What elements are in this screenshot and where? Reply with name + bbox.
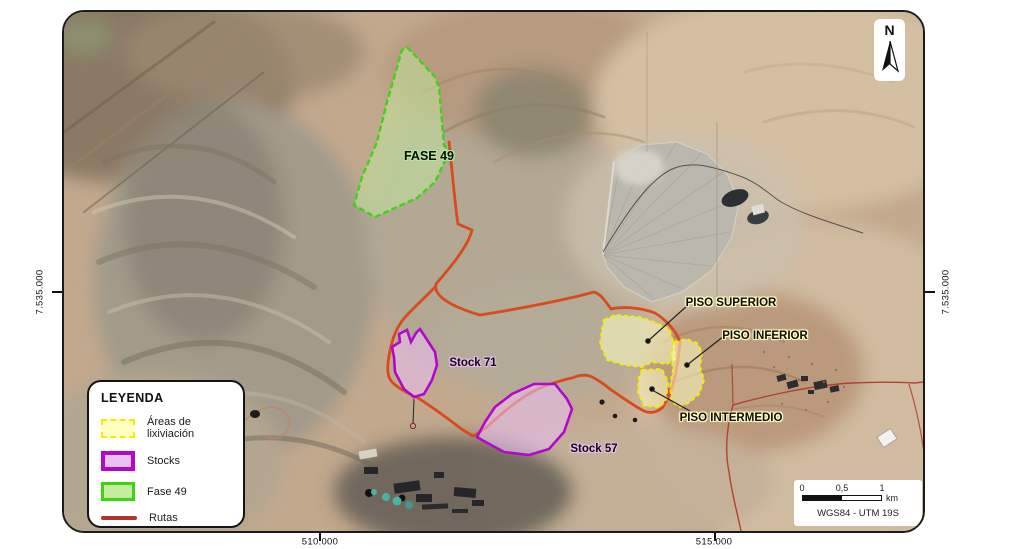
map-document: FASE 49 Stock 71 Stock 57 PISO SUPERIOR … — [0, 0, 1024, 549]
route-line-swatch — [101, 516, 137, 520]
scale-tick-05: 0,5 — [836, 483, 849, 493]
scale-bar: 0 0,5 1 km WGS84 - UTM 19S — [794, 480, 922, 526]
legend-item-label: Áreas de lixiviación — [147, 416, 231, 440]
label-fase-49: FASE 49 — [404, 149, 454, 163]
coordinate-label-west: 7.535.000 — [35, 270, 46, 315]
coordinate-label-south-west: 510.000 — [302, 537, 338, 548]
label-piso-intermedio: PISO INTERMEDIO — [680, 412, 783, 424]
coordinate-label-south-east: 515.000 — [696, 537, 732, 548]
label-stock-57: Stock 57 — [570, 443, 617, 455]
label-piso-superior: PISO SUPERIOR — [686, 297, 777, 309]
legend-title: LEYENDA — [101, 391, 231, 405]
stock-swatch — [101, 451, 135, 471]
legend-item-label: Stocks — [147, 455, 180, 467]
label-piso-inferior: PISO INFERIOR — [722, 330, 808, 342]
north-label: N — [874, 21, 905, 39]
north-arrow-icon — [879, 39, 901, 75]
scale-tick-labels: 0 0,5 1 — [794, 483, 922, 493]
map-canvas: FASE 49 Stock 71 Stock 57 PISO SUPERIOR … — [62, 10, 925, 533]
legend: LEYENDA Áreas de lixiviación Stocks Fase… — [87, 380, 245, 528]
scale-tick-1: 1 — [879, 483, 884, 493]
scale-bar-graphic — [802, 495, 882, 501]
leach-area-swatch — [101, 419, 135, 438]
legend-item-label: Rutas — [149, 512, 178, 524]
scale-unit: km — [886, 493, 898, 503]
coordinate-label-east: 7.535.000 — [941, 270, 952, 315]
legend-item-stocks: Stocks — [101, 451, 231, 471]
legend-item-fase49: Fase 49 — [101, 482, 231, 501]
fase-swatch — [101, 482, 135, 501]
legend-item-leach: Áreas de lixiviación — [101, 416, 231, 440]
legend-item-rutas: Rutas — [101, 512, 231, 524]
legend-item-label: Fase 49 — [147, 486, 187, 498]
north-arrow: N — [874, 19, 905, 81]
label-stock-71: Stock 71 — [449, 357, 496, 369]
tick-east — [925, 291, 935, 293]
scale-tick-0: 0 — [799, 483, 804, 493]
tick-west — [52, 291, 62, 293]
datum-label: WGS84 - UTM 19S — [794, 508, 922, 519]
